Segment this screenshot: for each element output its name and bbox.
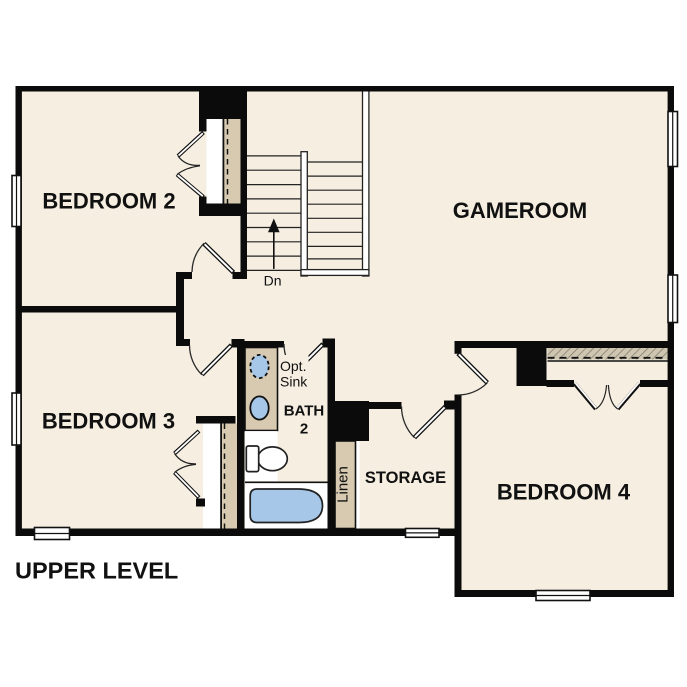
svg-text:BEDROOM 2: BEDROOM 2 — [42, 189, 175, 214]
svg-text:Dn: Dn — [264, 273, 282, 289]
svg-text:Linen: Linen — [335, 466, 352, 503]
svg-text:Opt.: Opt. — [280, 358, 306, 374]
svg-text:GAMEROOM: GAMEROOM — [453, 198, 587, 223]
svg-text:Sink: Sink — [280, 374, 308, 390]
svg-text:BEDROOM 4: BEDROOM 4 — [497, 480, 631, 505]
svg-text:2: 2 — [300, 421, 308, 438]
svg-text:BATH: BATH — [284, 403, 325, 420]
svg-text:BEDROOM 3: BEDROOM 3 — [42, 409, 175, 434]
svg-text:UPPER LEVEL: UPPER LEVEL — [15, 558, 178, 584]
svg-text:STORAGE: STORAGE — [365, 469, 446, 487]
